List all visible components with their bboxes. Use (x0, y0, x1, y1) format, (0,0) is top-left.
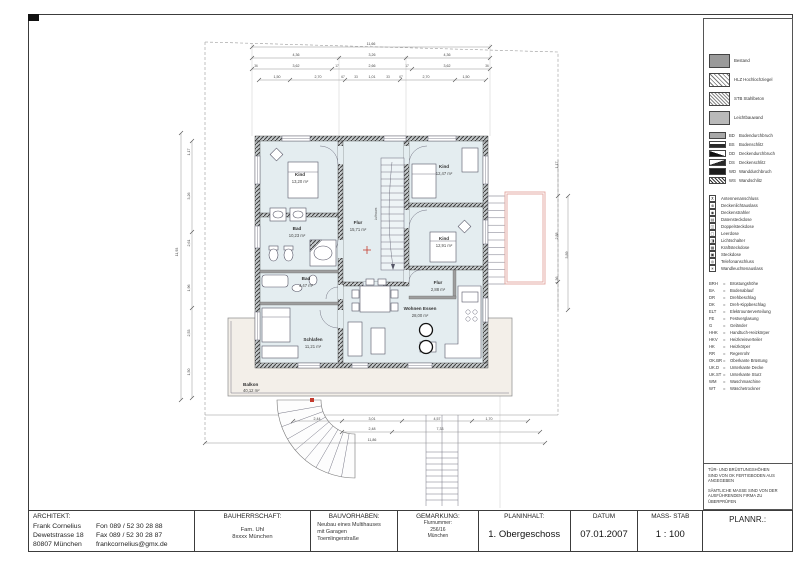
material-swatch-icon (709, 92, 730, 106)
scale-header: MASS- STAB (638, 513, 702, 520)
abbreviation-code: BRH (709, 281, 723, 288)
dimension-label: 7,33 (437, 427, 444, 431)
opening-code: WS (729, 178, 739, 183)
dimension-label: 1,70 (486, 417, 493, 421)
ceiling-spot-icon: ◉ (709, 209, 716, 216)
plan-sheet: { "title_block": { "architect": { "heade… (0, 0, 800, 566)
room-area: 40,12 m² (243, 388, 260, 393)
dimension-label: 2,66 (369, 64, 376, 68)
note-verify: Sämtliche Masse sind von der ausführende… (708, 488, 778, 505)
legend-label: Bestand (734, 58, 750, 63)
dimension-label: 67 (341, 75, 345, 79)
title-cell-date: DATUM 07.01.2007 (570, 511, 638, 551)
dimension-label: 33 (386, 75, 390, 79)
client-header: BAUHERRSCHAFT: (195, 513, 311, 520)
room-label: Kind (295, 172, 305, 177)
room-label: Schlafen (303, 337, 322, 342)
openings-legend: BD Bodendurchbruch BS Bodenschlitz DD De… (709, 131, 775, 185)
abbreviation-row: UK.ST = Unterkante Sturz (709, 372, 771, 379)
dimension-label: 67 (399, 75, 403, 79)
dimension-label: 17 (335, 64, 339, 68)
abbreviation-term: Wäschetrockner (730, 386, 760, 393)
dimension-label: 2,48 (369, 427, 376, 431)
dimension-label: 1,17 (187, 149, 191, 156)
abbreviation-code: HK (709, 344, 723, 351)
abbreviation-row: HKV = Heizkreisverteiler (709, 337, 771, 344)
legend-row: HLZ Hochlochziegel (709, 72, 772, 87)
dimension-label: 4,57 (434, 417, 441, 421)
legend-label: Kraftsteckdose (721, 245, 749, 250)
abbreviation-code: HHK (709, 330, 723, 337)
architect-city: 80807 München (33, 540, 84, 549)
title-cell-district: GEMARKUNG: Flurnummer: 256/16 München (397, 511, 478, 551)
legend-label: Datensteckdose (721, 217, 752, 222)
legend-row: Bestand (709, 53, 772, 68)
abbreviation-term: Dreh-Kippbeschlag (730, 302, 766, 309)
abbreviation-row: ELT = Elektrounterverteilung (709, 309, 771, 316)
abbreviation-term: Geländer (730, 323, 747, 330)
abbreviation-term: Oberkante Brüstung (730, 358, 767, 365)
room-label: Flur (434, 280, 443, 285)
dimension-label: 2,88 (555, 233, 559, 240)
project-line: mit Garagen (317, 529, 397, 536)
plan-number-header: PLANNR.: (703, 515, 792, 524)
abbreviation-code: RR (709, 351, 723, 358)
dimension-label: 1,50 (187, 369, 191, 376)
abbreviation-term: Unterkante Decke (730, 365, 764, 372)
abbreviation-code: FE (709, 316, 723, 323)
dimension-label: 36 (485, 64, 489, 68)
legend-row: ◎ Telefonanschluss (709, 258, 763, 265)
legend-label: Doppelsteckdose (721, 224, 754, 229)
legend-row: ⊗ Deckenlichtauslass (709, 202, 763, 209)
title-cell-client: BAUHERRSCHAFT: Fam. Uhl 8xxxx München (194, 511, 311, 551)
district-line: München (398, 533, 478, 540)
abbreviation-row: FE = Festverglasung (709, 316, 771, 323)
abbreviation-row: BA = Bodenablauf (709, 288, 771, 295)
legend-row: Leichtbauwand (709, 110, 772, 125)
power-socket-icon: ▦ (709, 244, 716, 251)
abbreviation-code: UK.ST (709, 372, 723, 379)
legend-label: Steckdose (721, 252, 741, 257)
legend-row: ◉ Deckenstrahler (709, 209, 763, 216)
room-area: 11,21 m² (305, 344, 322, 349)
legend-row: WD Wanddurchbruch (709, 167, 775, 176)
legend-label: Lichtschalter (721, 238, 745, 243)
room-area: 12,91 m² (436, 243, 453, 248)
dimension-label: 1,01 (369, 75, 376, 79)
title-cell-content: PLANINHALT: 1. Obergeschoss (478, 511, 570, 551)
architect-street: Dewetstrasse 18 (33, 531, 84, 540)
room-area: 12,47 m² (436, 171, 453, 176)
architect-header: ARCHITEKT: (33, 513, 194, 520)
legend-row: ▢ Leerdose (709, 230, 763, 237)
room-area: 4,47 m² (299, 283, 314, 288)
opening-swatch-icon (709, 168, 726, 175)
legend-row: ▦ Kraftsteckdose (709, 244, 763, 251)
round-table (420, 341, 433, 354)
abbreviation-row: DK = Dreh-Kippbeschlag (709, 302, 771, 309)
dimension-label: 11,86 (368, 438, 377, 442)
architect-name: Frank Cornelius (33, 522, 84, 531)
dimension-label: 2,53 (187, 330, 191, 337)
round-table (420, 324, 433, 337)
data-socket-icon: ▤ (709, 216, 716, 223)
dimension-label: 4,36 (444, 53, 451, 57)
abbreviation-term: Regenrohr (730, 351, 750, 358)
abbreviation-term: Festverglasung (730, 316, 759, 323)
legend-label: Leichtbauwand (734, 115, 763, 120)
legend-label: Deckenlichtauslass (721, 203, 758, 208)
legend-label: HLZ Hochlochziegel (734, 77, 772, 82)
sideboard-schlafen (262, 346, 298, 358)
bed-schlafen (262, 308, 290, 342)
dimension-label: 2,44 (314, 417, 321, 421)
opening-swatch-icon (709, 141, 726, 148)
abbreviation-code: WM (709, 379, 723, 386)
room-area: 10,23 m² (289, 233, 306, 238)
content-header: PLANINHALT: (479, 513, 570, 520)
dimension-label: 36 (254, 64, 258, 68)
room-area: 13,20 m² (292, 179, 309, 184)
legend-row: ▤ Datensteckdose (709, 216, 763, 223)
dimension-label: 2,61 (187, 240, 191, 247)
dimension-label: 1,50 (274, 75, 281, 79)
spiral-staircase (277, 400, 355, 478)
legend-row: ⊼ Antennenanschluss (709, 195, 763, 202)
legend-label: Leerdose (721, 231, 739, 236)
opening-swatch-icon (709, 159, 726, 166)
dimension-label: 1,36 (555, 277, 559, 284)
project-line: Neubau eines Multihauses (317, 522, 397, 529)
floor-plan: Kind 13,20 m² Flur 15,71 m² Kind 12,47 m… (0, 0, 800, 566)
external-stair-right (488, 196, 505, 284)
abbreviation-term: Heizkreisverteiler (730, 337, 762, 344)
abbreviation-row: RR = Regenrohr (709, 351, 771, 358)
empty-box-icon: ▢ (709, 230, 716, 237)
room-label: Balkon (243, 382, 259, 387)
abbreviation-term: Waschmaschine (730, 379, 761, 386)
room-label: Bad (302, 276, 311, 281)
room-area: 2,88 m² (431, 287, 446, 292)
legend-label: Telefonanschluss (721, 259, 754, 264)
dimension-label: 3,26 (187, 193, 191, 200)
plan-title: 1. Obergeschoss (479, 529, 570, 540)
opening-code: DD (729, 151, 739, 156)
material-legend: Bestand HLZ Hochlochziegel STB Stahlbeto… (709, 53, 772, 129)
district-header: GEMARKUNG: (398, 513, 478, 520)
abbreviation-row: OK.BR = Oberkante Brüstung (709, 358, 771, 365)
legend-row: BD Bodendurchbruch (709, 131, 775, 140)
material-swatch-icon (709, 54, 730, 68)
abbreviation-row: WT = Wäschetrockner (709, 386, 771, 393)
room-label: Kind (439, 236, 449, 241)
legend-row: ◨ Lichtschalter (709, 237, 763, 244)
abbreviation-term: Drehbeschlag (730, 295, 756, 302)
title-cell-scale: MASS- STAB 1 : 100 (637, 511, 702, 551)
legend-label: Wanddurchbruch (739, 169, 772, 174)
wall-light-icon: ✳ (709, 265, 716, 272)
date-header: DATUM (571, 513, 638, 520)
opening-code: BS (729, 142, 739, 147)
project-line: Toemlingerstraße (317, 536, 397, 543)
plan-scale: 1 : 100 (638, 529, 702, 540)
legend-row: ▣ Steckdose (709, 251, 763, 258)
abbreviation-term: Bodenablauf (730, 288, 754, 295)
abbreviation-code: WT (709, 386, 723, 393)
abbreviation-term: Unterkante Sturz (730, 372, 761, 379)
dimension-label: 3,89 (565, 252, 569, 259)
note-heights: Tür- und Brüstungshöhen sind von OK Fert… (708, 467, 778, 484)
legend-label: Deckenstrahler (721, 210, 750, 215)
abbreviation-term: Handtuch-Heizkörper (730, 330, 770, 337)
abbreviation-code: OK.BR (709, 358, 723, 365)
desk-kind-2 (462, 148, 478, 172)
legend-label: Bodendurchbruch (739, 133, 773, 138)
plan-date: 07.01.2007 (571, 529, 638, 540)
title-cell-architect: ARCHITEKT: Frank Cornelius Dewetstrasse … (29, 511, 194, 551)
room-area: 15,71 m² (350, 227, 367, 232)
opening-swatch-icon (709, 177, 726, 184)
abbreviation-term: Brüstungshöhe (730, 281, 758, 288)
ceiling-light-icon: ⊗ (709, 202, 716, 209)
general-notes: Tür- und Brüstungshöhen sind von OK Fert… (704, 463, 792, 512)
abbreviation-term: Elektrounterverteilung (730, 309, 771, 316)
legend-row: STB Stahlbeton (709, 91, 772, 106)
room-label: Wohnen Essen (404, 306, 437, 311)
abbreviation-row: HHK = Handtuch-Heizkörper (709, 330, 771, 337)
dimension-label: 3,62 (444, 64, 451, 68)
double-socket-icon: ◫ (709, 223, 716, 230)
room-label: Kind (439, 164, 449, 169)
legend-label: STB Stahlbeton (734, 96, 764, 101)
title-cell-project: BAUVORHABEN: Neubau eines Multihauses mi… (310, 511, 397, 551)
dimension-label: 3,26 (369, 53, 376, 57)
legend-sidebar: Bestand HLZ Hochlochziegel STB Stahlbeto… (703, 18, 793, 510)
opening-code: WD (729, 169, 739, 174)
architect-fon: Fon 089 / 52 30 28 88 (96, 522, 168, 531)
title-block: ARCHITEKT: Frank Cornelius Dewetstrasse … (28, 510, 793, 552)
dimension-label: 3,01 (369, 417, 376, 421)
abbreviation-row: WM = Waschmaschine (709, 379, 771, 386)
opening-swatch-icon (709, 132, 726, 139)
balcony-right-outline (505, 192, 545, 284)
abbreviation-row: BRH = Brüstungshöhe (709, 281, 771, 288)
dimension-label: 1,17 (555, 162, 559, 169)
legend-row: DD Deckendurchbruch (709, 149, 775, 158)
legend-row: ✳ Wandleuchtenauslass (709, 265, 763, 272)
legend-label: Bodenschlitz (739, 142, 763, 147)
architect-email: frankcornelius@gmx.de (96, 540, 168, 549)
legend-row: BS Bodenschlitz (709, 140, 775, 149)
abbreviation-code: DR (709, 295, 723, 302)
legend-label: Antennenanschluss (721, 196, 759, 201)
dimension-label: 2,70 (315, 75, 322, 79)
dimension-label: 11,93 (175, 248, 179, 257)
abbreviation-row: DR = Drehbeschlag (709, 295, 771, 302)
abbreviation-row: HK = Heizkörper (709, 344, 771, 351)
dimension-label: 17 (405, 64, 409, 68)
architect-fax: Fax 089 / 52 30 28 87 (96, 531, 168, 540)
legend-row: ◫ Doppelsteckdose (709, 223, 763, 230)
abbreviation-code: HKV (709, 337, 723, 344)
dimension-label: 4,36 (293, 53, 300, 57)
legend-label: Wandleuchtenauslass (721, 266, 763, 271)
room-label: Bad (293, 226, 302, 231)
abbreviation-code: DK (709, 302, 723, 309)
dimension-label: 11,66 (367, 42, 376, 46)
interior-staircase (381, 158, 404, 270)
legend-label: Wandschlitz (739, 178, 762, 183)
legend-label: Deckendurchbruch (739, 151, 775, 156)
opening-swatch-icon (709, 150, 726, 157)
dimension-label: 2,70 (423, 75, 430, 79)
phone-socket-icon: ◎ (709, 258, 716, 265)
legend-label: Deckenschlitz (739, 160, 766, 165)
legend-row: DS Deckenschlitz (709, 158, 775, 167)
client-city: 8xxxx München (195, 534, 311, 541)
socket-icon: ▣ (709, 251, 716, 258)
project-header: BAUVORHABEN: (311, 513, 397, 520)
material-swatch-icon (709, 111, 730, 125)
abbreviation-term: Heizkörper (730, 344, 750, 351)
legend-row: WS Wandschlitz (709, 176, 775, 185)
abbreviation-code: G (709, 323, 723, 330)
bed-kind-2 (412, 164, 436, 198)
dimension-label: 1,50 (463, 75, 470, 79)
material-swatch-icon (709, 73, 730, 87)
antenna-icon: ⊼ (709, 195, 716, 202)
abbreviation-row: UK.D = Unterkante Decke (709, 365, 771, 372)
room-label: Flur (354, 220, 363, 225)
electrical-legend: ⊼ Antennenanschluss ⊗ Deckenlichtauslass… (709, 195, 763, 272)
title-cell-plan-number: PLANNR.: (702, 511, 792, 551)
light-switch-icon: ◨ (709, 237, 716, 244)
opening-code: DS (729, 160, 739, 165)
opening-code: BD (729, 133, 739, 138)
abbreviation-code: BA (709, 288, 723, 295)
room-area: 28,00 m² (412, 313, 429, 318)
abbreviation-row: G = Geländer (709, 323, 771, 330)
dimension-label: 33 (354, 75, 358, 79)
abbreviation-legend: BRH = Brüstungshöhe BA = Bodenablauf DR … (709, 281, 771, 393)
dimension-label: 1,96 (187, 285, 191, 292)
abbreviation-code: ELT (709, 309, 723, 316)
abbreviation-code: UK.D (709, 365, 723, 372)
stair-void-label: Luftraum (374, 207, 378, 220)
dimension-label: 3,62 (293, 64, 300, 68)
